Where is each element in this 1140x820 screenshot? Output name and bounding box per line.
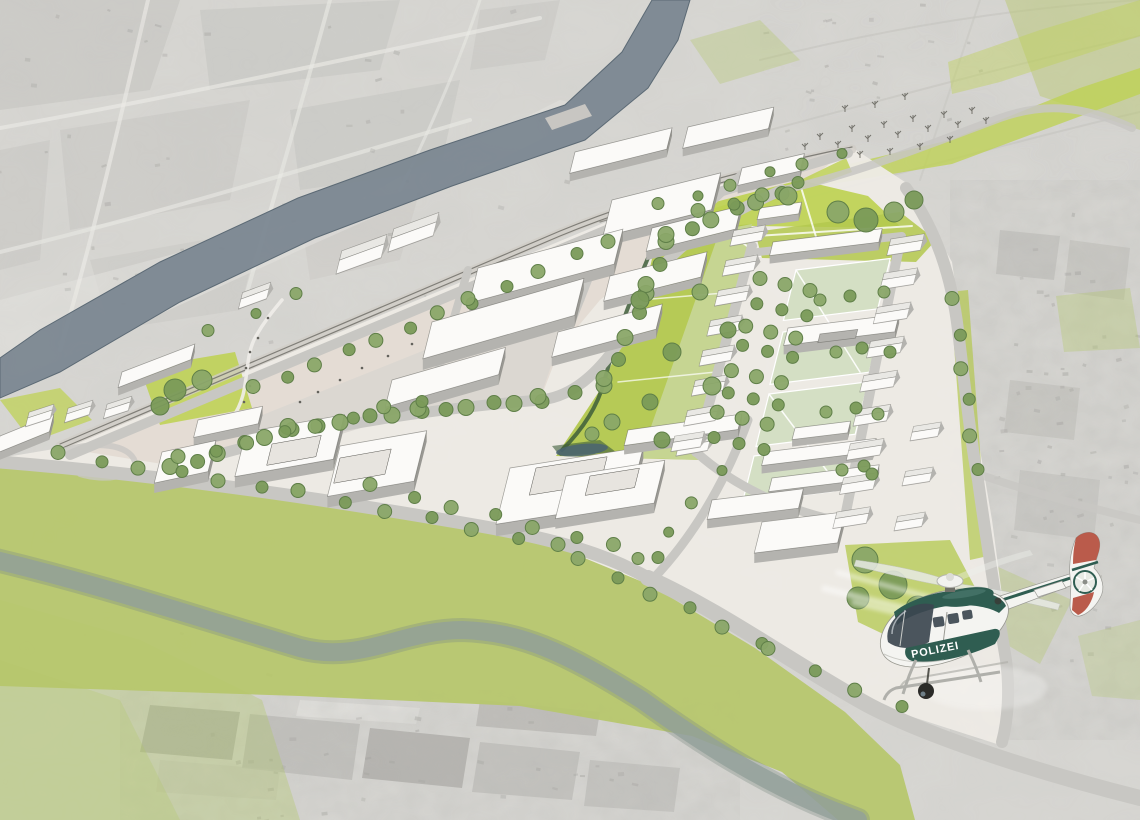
tree-icon <box>760 417 774 431</box>
tree-icon <box>409 492 421 504</box>
photo-speckle <box>1061 473 1066 476</box>
tree-icon <box>210 445 222 457</box>
tree-icon <box>753 272 767 286</box>
tree-icon <box>601 235 615 249</box>
photo-speckle <box>528 721 534 724</box>
photo-speckle <box>321 812 327 816</box>
tree-icon <box>604 414 620 430</box>
tree-icon <box>202 325 214 337</box>
window-icon <box>962 609 973 619</box>
tree-icon <box>151 397 169 415</box>
photo-speckle <box>1026 386 1032 390</box>
tree-icon <box>191 455 205 469</box>
tree-icon <box>747 393 759 405</box>
tree-icon <box>809 665 821 677</box>
tree-icon <box>513 533 525 545</box>
tree-icon <box>836 464 848 476</box>
fin-red-top <box>1073 532 1100 564</box>
tree-icon <box>896 701 908 713</box>
photo-speckle <box>25 58 31 62</box>
photo-speckle <box>809 98 814 101</box>
tree-icon <box>571 552 585 566</box>
person-dot <box>243 401 246 404</box>
tree-icon <box>735 411 749 425</box>
photo-speckle <box>1122 419 1126 422</box>
tree-icon <box>240 436 254 450</box>
tree-icon <box>792 177 804 189</box>
person-dot <box>361 367 364 370</box>
tree-icon <box>307 358 321 372</box>
tree-icon <box>776 304 788 316</box>
tree-icon <box>164 379 186 401</box>
tree-icon <box>963 429 977 443</box>
tree-icon <box>954 362 968 376</box>
photo-speckle <box>1026 370 1032 373</box>
tree-icon <box>717 466 727 476</box>
tree-icon <box>211 474 225 488</box>
tree-icon <box>663 343 681 361</box>
tree-icon <box>733 438 745 450</box>
tree-icon <box>612 572 624 584</box>
person-dot <box>245 367 248 370</box>
tree-icon <box>664 527 674 537</box>
tree-icon <box>772 399 784 411</box>
photo-speckle <box>1070 659 1074 662</box>
tree-icon <box>652 198 664 210</box>
tree-icon <box>751 298 763 310</box>
tree-icon <box>778 278 792 292</box>
tree-icon <box>658 227 674 243</box>
tree-icon <box>192 370 212 390</box>
rotor-dome <box>946 573 954 581</box>
tree-icon <box>282 371 294 383</box>
tree-icon <box>954 329 966 341</box>
tree-icon <box>347 412 359 424</box>
person-dot <box>317 391 320 394</box>
tree-icon <box>737 339 749 351</box>
window-icon <box>947 613 959 625</box>
tree-icon <box>749 370 763 384</box>
tree-icon <box>176 466 188 478</box>
photo-speckle <box>920 4 926 7</box>
tree-icon <box>506 396 522 412</box>
tree-icon <box>762 345 774 357</box>
photo-speckle <box>1124 465 1129 469</box>
photo-speckle <box>1125 480 1128 484</box>
tree-icon <box>848 683 862 697</box>
photo-speckle <box>1062 372 1068 376</box>
person-dot <box>387 355 390 358</box>
tree-icon <box>426 512 438 524</box>
tree-icon <box>765 167 775 177</box>
photo-speckle <box>1065 273 1072 276</box>
photo-speckle <box>1061 368 1065 370</box>
tree-icon <box>606 538 620 552</box>
photo-speckle <box>31 83 37 87</box>
photo-speckle <box>289 737 296 741</box>
tree-icon <box>720 322 736 338</box>
tree-icon <box>96 456 108 468</box>
tree-icon <box>490 509 502 521</box>
tree-icon <box>837 149 847 159</box>
photo-speckle <box>1033 248 1039 251</box>
tree-icon <box>291 484 305 498</box>
tree-icon <box>551 538 565 552</box>
tree-icon <box>814 294 826 306</box>
photo-speckle <box>832 22 836 25</box>
tree-icon <box>279 426 291 438</box>
tree-icon <box>631 291 649 309</box>
tree-icon <box>246 380 260 394</box>
tree-icon <box>758 444 770 456</box>
tree-icon <box>501 281 513 293</box>
tree-icon <box>369 333 383 347</box>
photo-speckle <box>1044 372 1049 375</box>
photo-speckle <box>507 707 512 711</box>
tree-icon <box>377 400 391 414</box>
person-dot <box>299 401 302 404</box>
photo-speckle <box>204 32 211 35</box>
tree-icon <box>945 292 959 306</box>
tree-icon <box>703 212 719 228</box>
tree-icon <box>761 642 775 656</box>
gimbal-lens-icon <box>921 692 926 697</box>
tree-icon <box>703 377 721 395</box>
tree-icon <box>820 406 832 418</box>
tree-icon <box>789 331 803 345</box>
tree-icon <box>779 187 797 205</box>
photo-speckle <box>162 54 167 57</box>
tree-icon <box>51 446 65 460</box>
photo-speckle <box>346 125 352 127</box>
tree-icon <box>171 450 185 464</box>
photo-speckle <box>1014 343 1018 346</box>
tree-icon <box>710 405 724 419</box>
tree-icon <box>963 393 975 405</box>
photo-speckle <box>1020 277 1024 280</box>
tree-icon <box>308 419 322 433</box>
tree-icon <box>796 158 808 170</box>
photo-speckle <box>596 765 600 767</box>
tree-icon <box>290 288 302 300</box>
photo-speckle <box>1075 271 1081 275</box>
photo-speckle <box>618 772 624 776</box>
tree-icon <box>568 386 582 400</box>
tree-icon <box>854 208 878 232</box>
tree-icon <box>251 309 261 319</box>
photo-speckle <box>1000 429 1007 434</box>
tree-icon <box>632 553 644 565</box>
tree-icon <box>728 198 740 210</box>
tree-icon <box>332 414 348 430</box>
photo-speckle <box>1090 280 1096 284</box>
tree-icon <box>653 258 667 272</box>
tree-icon <box>691 204 705 218</box>
tree-icon <box>685 222 699 236</box>
tree-icon <box>430 306 444 320</box>
tree-icon <box>571 248 583 260</box>
person-dot <box>257 337 260 340</box>
tree-icon <box>803 284 817 298</box>
tree-icon <box>884 346 896 358</box>
tree-icon <box>343 344 355 356</box>
tree-icon <box>755 188 769 202</box>
gimbal-sphere-icon <box>918 683 934 699</box>
tree-icon <box>850 402 862 414</box>
area <box>1056 288 1140 352</box>
tree-icon <box>764 325 778 339</box>
tree-icon <box>692 284 708 300</box>
photo-speckle <box>500 795 506 799</box>
tree-icon <box>339 497 351 509</box>
tree-icon <box>256 430 272 446</box>
tree-icon <box>571 532 583 544</box>
exhaust-icon <box>995 598 1002 605</box>
tree-icon <box>872 408 884 420</box>
tree-icon <box>444 501 458 515</box>
tree-icon <box>531 265 545 279</box>
tree-icon <box>131 461 145 475</box>
photo-speckle <box>45 151 48 154</box>
photo-speckle <box>91 246 94 250</box>
tree-icon <box>585 427 599 441</box>
tree-icon <box>487 396 501 410</box>
photo-speckle <box>811 89 814 92</box>
tree-icon <box>801 310 813 322</box>
tree-icon <box>693 191 703 201</box>
photo-speckle <box>67 134 71 138</box>
tree-icon <box>458 400 474 416</box>
tree-icon <box>856 342 868 354</box>
tree-icon <box>530 389 546 405</box>
tree-icon <box>866 468 878 480</box>
person-dot <box>249 351 252 354</box>
tree-icon <box>787 351 799 363</box>
tree-icon <box>363 409 377 423</box>
window-icon <box>932 616 944 628</box>
fenestron-hub <box>1083 580 1088 585</box>
photo-speckle <box>1060 386 1064 389</box>
aerial-masterplan-rendering: POLIZEI <box>0 0 1140 820</box>
person-dot <box>411 343 414 346</box>
tree-icon <box>439 403 453 417</box>
tree-icon <box>405 322 417 334</box>
tree-icon <box>638 277 654 293</box>
tree-icon <box>654 432 670 448</box>
photo-speckle <box>869 18 874 22</box>
tree-icon <box>642 394 658 410</box>
tree-icon <box>685 497 697 509</box>
tree-icon <box>708 432 720 444</box>
tree-icon <box>363 478 377 492</box>
tree-icon <box>905 191 923 209</box>
tree-icon <box>722 387 734 399</box>
photo-speckle <box>104 202 111 207</box>
tree-icon <box>256 481 268 493</box>
tree-icon <box>844 290 856 302</box>
tree-icon <box>617 330 633 346</box>
person-dot <box>339 379 342 382</box>
photo-speckle <box>166 157 170 160</box>
tree-icon <box>724 364 738 378</box>
tree-icon <box>878 286 890 298</box>
photo-speckle <box>1037 290 1044 294</box>
photo-speckle <box>999 450 1004 452</box>
rendering-svg: POLIZEI <box>0 0 1140 820</box>
tree-icon <box>884 202 904 222</box>
photo-speckle <box>401 110 405 114</box>
tree-icon <box>715 620 729 634</box>
photo-speckle <box>967 41 971 44</box>
tree-icon <box>461 292 475 306</box>
photo-speckle <box>580 775 585 777</box>
tree-icon <box>652 552 664 564</box>
tree-icon <box>684 602 696 614</box>
tree-icon <box>596 371 612 387</box>
tree-icon <box>972 464 984 476</box>
tree-icon <box>416 396 428 408</box>
tree-icon <box>464 523 478 537</box>
tree-icon <box>739 319 753 333</box>
tree-icon <box>774 376 788 390</box>
tree-icon <box>612 353 626 367</box>
tree-icon <box>827 201 849 223</box>
tree-icon <box>378 505 392 519</box>
tree-icon <box>724 179 736 191</box>
photo-speckle <box>63 273 67 276</box>
tree-icon <box>643 587 657 601</box>
tree-icon <box>525 521 539 535</box>
person-dot <box>267 317 270 320</box>
tree-icon <box>830 346 842 358</box>
wash-glow <box>923 666 1047 710</box>
